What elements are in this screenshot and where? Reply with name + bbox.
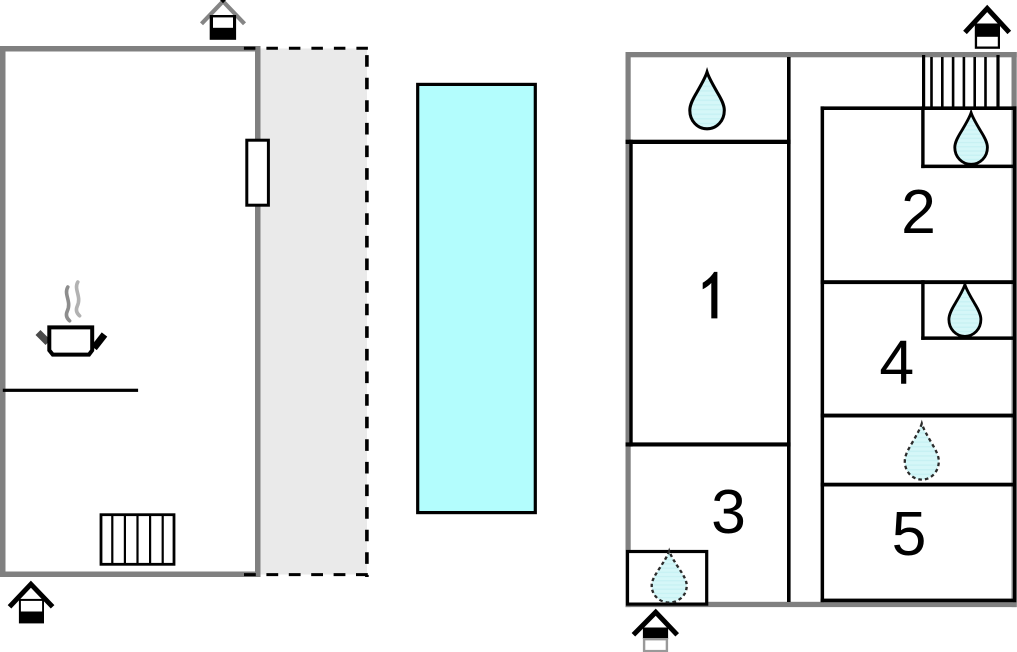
svg-text:2: 2 <box>901 177 936 247</box>
svg-text:4: 4 <box>879 327 914 397</box>
svg-text:5: 5 <box>892 499 927 569</box>
svg-text:3: 3 <box>711 477 746 547</box>
